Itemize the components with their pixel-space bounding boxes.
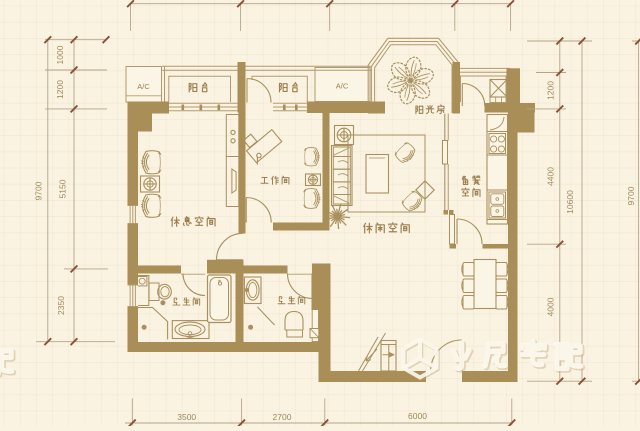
svg-text:9700: 9700 — [34, 181, 44, 200]
svg-text:2700: 2700 — [273, 412, 292, 422]
svg-text:3500: 3500 — [177, 412, 196, 422]
svg-text:9700: 9700 — [626, 186, 636, 205]
svg-text:1200: 1200 — [546, 81, 556, 100]
svg-text:1000: 1000 — [55, 45, 65, 64]
svg-text:A/C: A/C — [336, 82, 349, 91]
svg-text:4000: 4000 — [546, 297, 556, 316]
svg-text:6000: 6000 — [408, 411, 427, 421]
svg-text:A/C: A/C — [137, 82, 150, 91]
svg-text:4400: 4400 — [546, 167, 556, 186]
svg-text:2350: 2350 — [56, 296, 66, 315]
svg-text:5150: 5150 — [58, 179, 68, 198]
svg-text:10600: 10600 — [565, 190, 575, 214]
svg-text:1200: 1200 — [55, 80, 65, 99]
